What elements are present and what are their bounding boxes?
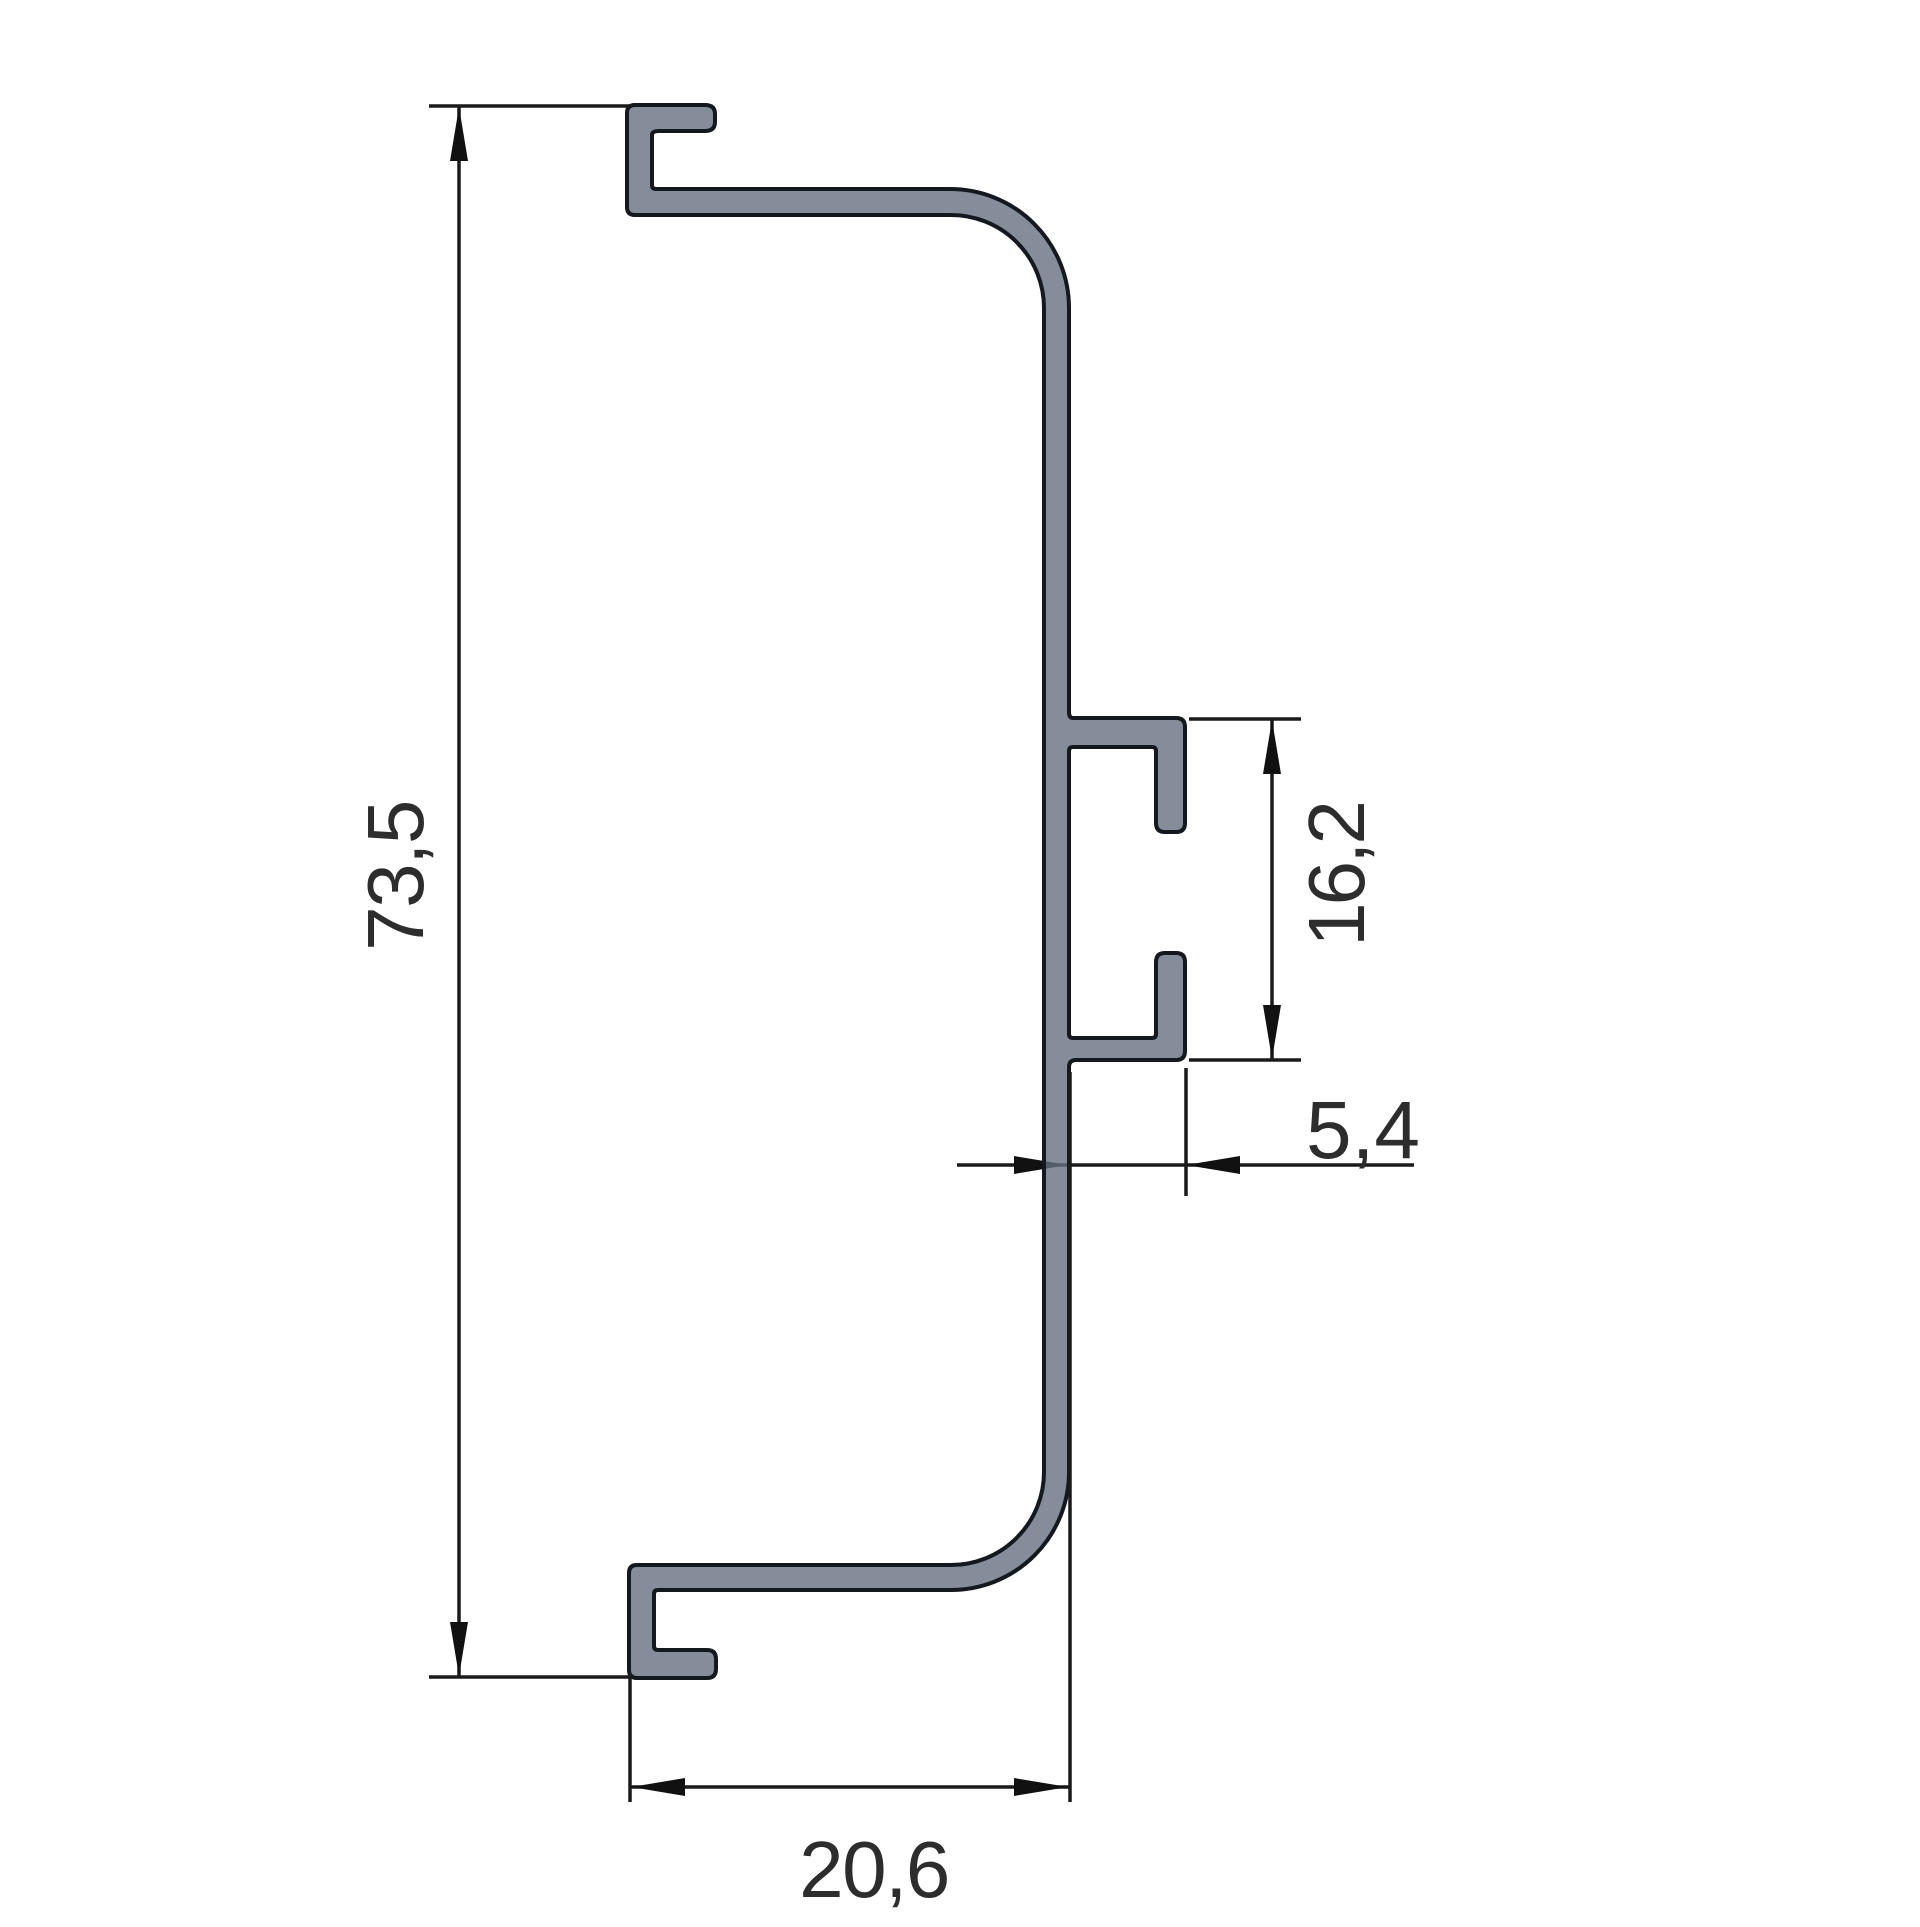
svg-text:5,4: 5,4 bbox=[1306, 1085, 1420, 1176]
svg-text:20,6: 20,6 bbox=[799, 1825, 949, 1914]
svg-text:16,2: 16,2 bbox=[1292, 803, 1381, 947]
svg-text:73,5: 73,5 bbox=[351, 801, 440, 951]
